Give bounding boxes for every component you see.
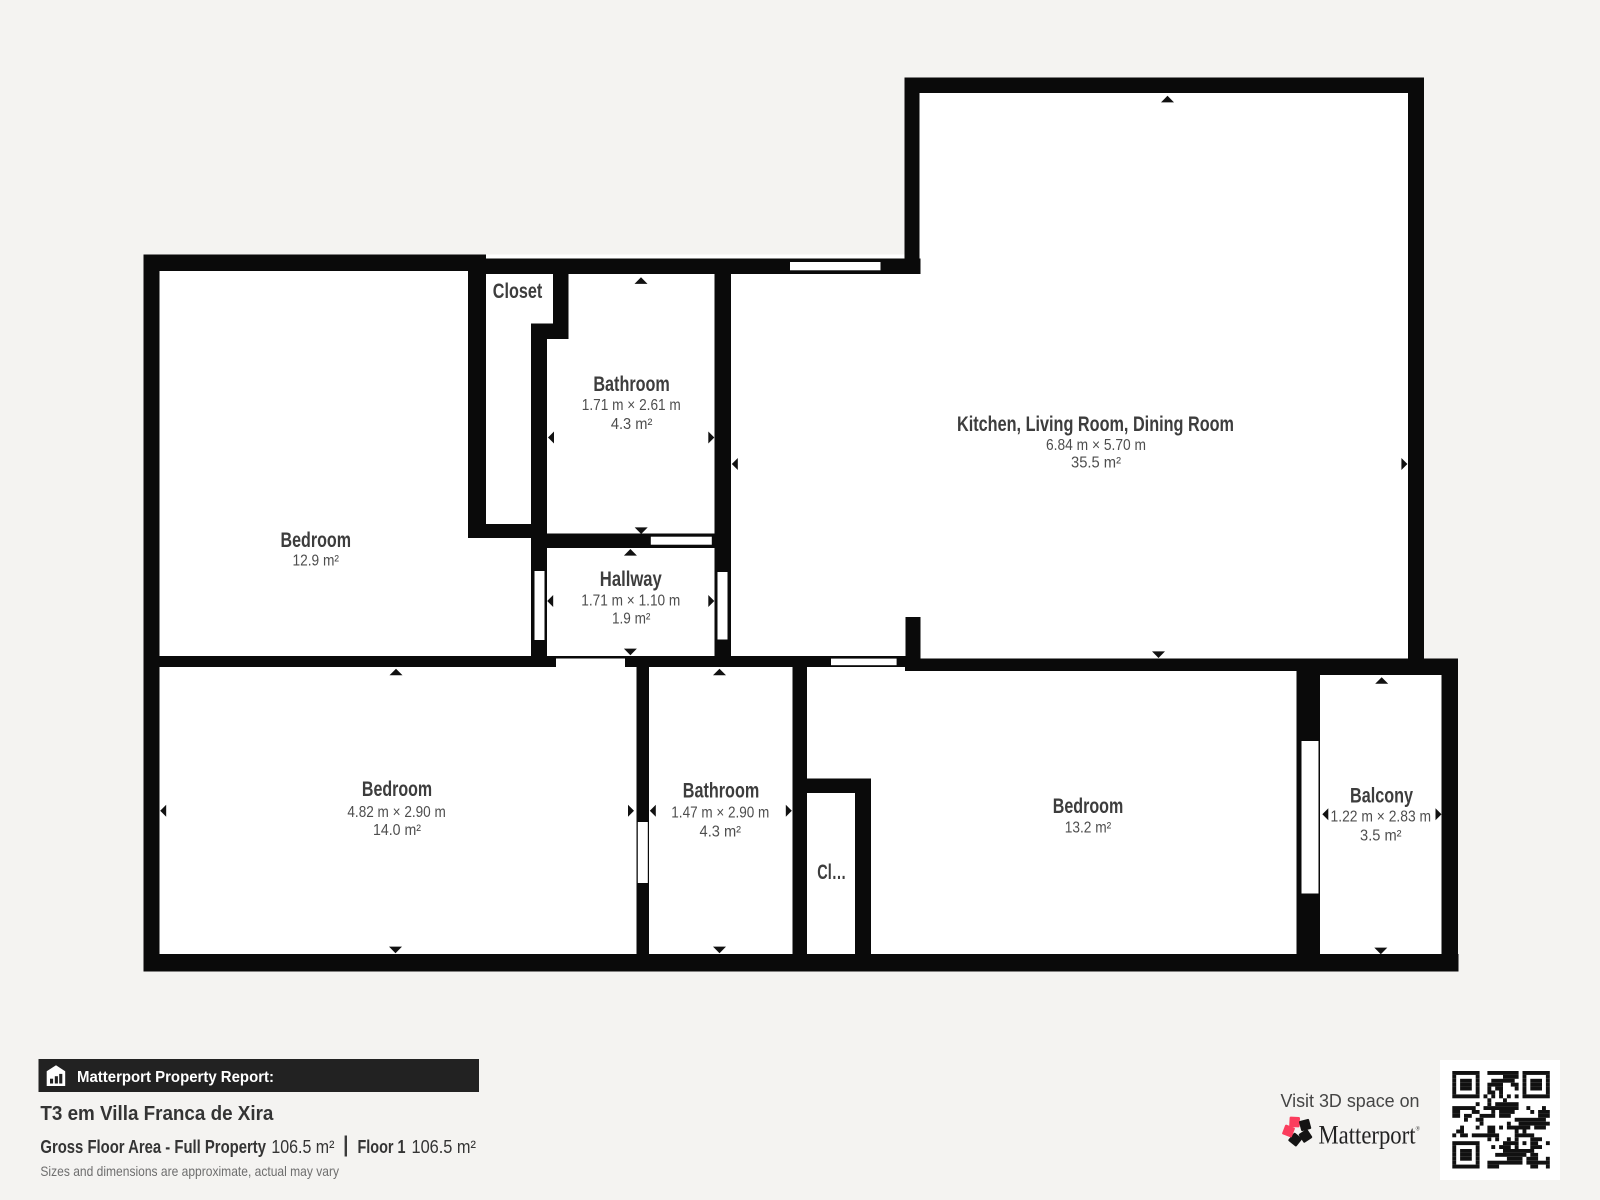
svg-text:Matterport Property Report:: Matterport Property Report: [77,1069,274,1086]
svg-text:Cl…: Cl… [817,861,846,884]
svg-text:Gross Floor Area - Full Proper: Gross Floor Area - Full Property [40,1137,266,1157]
svg-text:Bedroom: Bedroom [281,529,352,552]
svg-text:106.5 m²: 106.5 m² [412,1137,477,1157]
svg-text:1.71 m × 1.10 m: 1.71 m × 1.10 m [581,592,680,609]
svg-text:12.9 m²: 12.9 m² [293,553,340,570]
svg-text:Bathroom: Bathroom [593,373,670,396]
svg-text:Bedroom: Bedroom [362,778,432,801]
svg-text:T3 em Villa Franca de Xira: T3 em Villa Franca de Xira [40,1103,274,1125]
svg-text:6.84 m × 5.70 m: 6.84 m × 5.70 m [1046,437,1146,454]
svg-text:4.3 m²: 4.3 m² [611,416,653,433]
svg-text:3.5 m²: 3.5 m² [1360,828,1402,845]
svg-text:1.9 m²: 1.9 m² [612,611,651,628]
svg-text:Matterport: Matterport [1319,1120,1417,1150]
svg-text:35.5 m²: 35.5 m² [1071,455,1121,472]
svg-text:106.5 m²: 106.5 m² [271,1137,334,1157]
svg-text:Bedroom: Bedroom [1053,795,1124,818]
svg-text:Floor 1: Floor 1 [358,1137,406,1157]
svg-text:®: ® [1416,1126,1421,1133]
svg-text:Visit 3D space on: Visit 3D space on [1281,1090,1420,1111]
svg-text:1.47 m × 2.90 m: 1.47 m × 2.90 m [671,805,769,822]
svg-text:Sizes and dimensions are appro: Sizes and dimensions are approximate, ac… [40,1163,339,1179]
svg-text:Balcony: Balcony [1350,785,1413,808]
svg-text:Closet: Closet [493,280,543,303]
svg-text:4.82 m × 2.90 m: 4.82 m × 2.90 m [347,804,445,821]
svg-text:14.0 m²: 14.0 m² [373,822,421,839]
svg-text:1.22 m × 2.83 m: 1.22 m × 2.83 m [1331,809,1432,826]
svg-text:4.3 m²: 4.3 m² [700,824,742,841]
svg-text:Hallway: Hallway [600,568,662,591]
svg-text:13.2 m²: 13.2 m² [1065,820,1112,837]
svg-text:Kitchen, Living Room, Dining R: Kitchen, Living Room, Dining Room [957,413,1234,436]
svg-text:Bathroom: Bathroom [683,779,760,802]
svg-text:1.71 m × 2.61 m: 1.71 m × 2.61 m [582,397,681,414]
